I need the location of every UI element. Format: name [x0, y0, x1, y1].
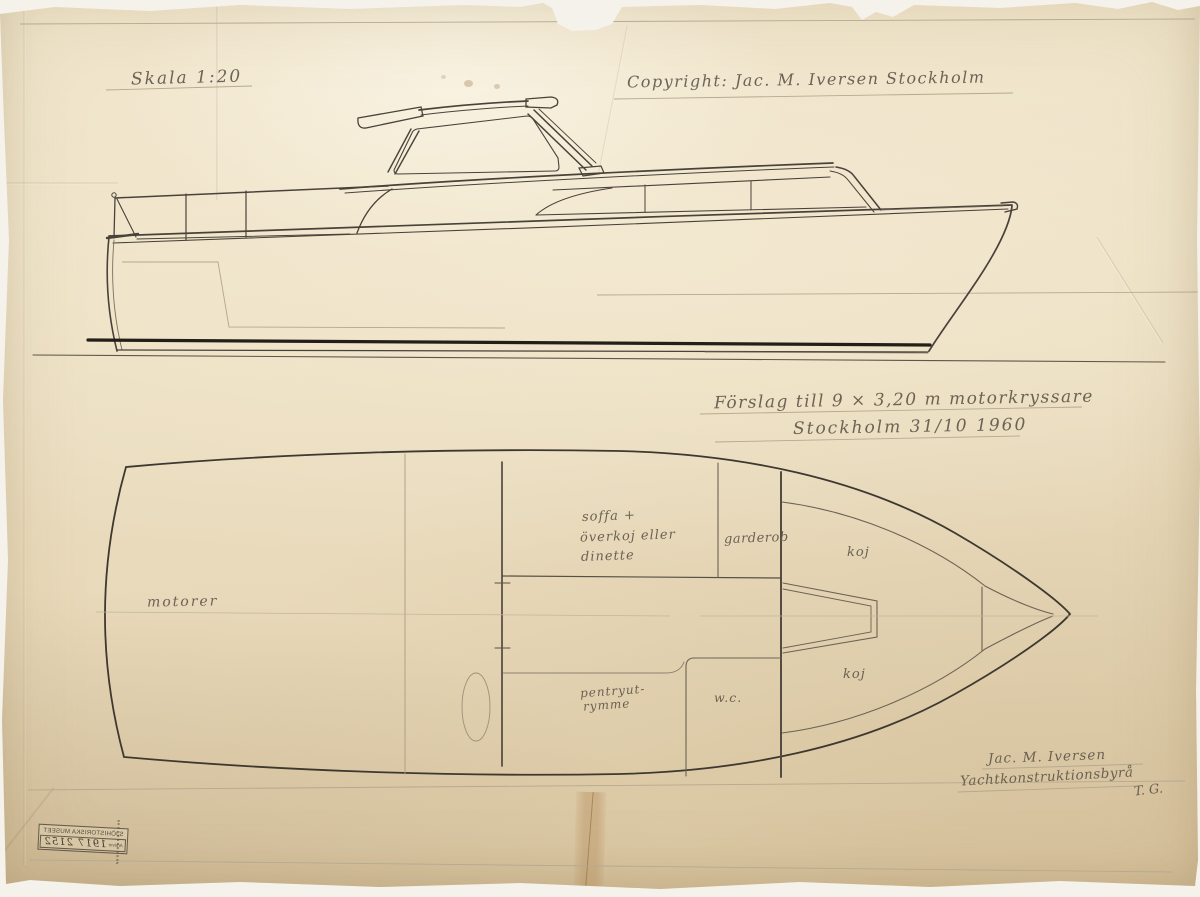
baseline	[33, 355, 1165, 362]
museum-stamp: SJÖHISTORISKA MUSEET Arkivnr 1917 2152	[37, 824, 128, 855]
cabin-window-top	[553, 177, 830, 190]
inner-hull-bottom	[782, 616, 1053, 733]
inner-hull-top	[782, 502, 1053, 614]
plan-view	[96, 450, 1098, 777]
title-underline-1	[700, 407, 1082, 414]
scanned-boat-drawing: Skala 1:20 Copyright: Jac. M. Iversen St…	[0, 0, 1200, 897]
paper-sheet: Skala 1:20 Copyright: Jac. M. Iversen St…	[0, 0, 1200, 897]
bottom-border-line	[30, 860, 1172, 872]
bridge-rail-cap	[526, 97, 558, 108]
boat-drawing	[0, 0, 1200, 897]
windscreen-glass	[528, 114, 586, 170]
museum-stamp-archive-label: Arkivnr	[108, 842, 123, 848]
title-underline-2	[715, 436, 1020, 442]
engine-compartment-outline	[122, 262, 505, 328]
waterline	[88, 340, 930, 345]
berth-footwell-outer	[783, 583, 877, 653]
sheet-guidelines	[20, 19, 1199, 872]
signature-underline	[982, 764, 1143, 769]
windscreen-glass	[534, 110, 592, 166]
sheer-line	[109, 205, 1012, 236]
stem	[929, 206, 1012, 351]
lower-border-line	[28, 781, 1185, 790]
bridge-window-opening	[394, 116, 559, 174]
bridge-top-rail	[419, 101, 528, 110]
stern-rail-post	[114, 198, 115, 238]
transom	[107, 237, 117, 351]
copyright-underline	[614, 93, 1013, 99]
side-view-construction	[122, 262, 505, 328]
transom-inner	[113, 240, 122, 350]
rail-knob	[112, 193, 116, 197]
scale-underline	[106, 86, 252, 90]
stem-head	[1001, 202, 1018, 212]
top-border-line	[20, 19, 1195, 24]
wc-partition	[686, 658, 781, 776]
crease-line	[597, 292, 1199, 295]
pantry-fixture	[462, 673, 490, 741]
hull-bottom	[117, 350, 928, 352]
sofa-front-edge	[503, 576, 781, 578]
windscreen-frame-edge	[539, 109, 596, 163]
cabin-front-pillar-inner	[830, 171, 874, 212]
cabin-front-pillar	[836, 167, 881, 210]
side-view	[33, 97, 1165, 362]
plan-hull-outline	[105, 450, 1070, 775]
pantry-counter	[503, 662, 684, 673]
stern-rail-brace	[117, 199, 136, 237]
museum-stamp-archive-number: 1917 2152	[43, 836, 107, 850]
centerline-aft	[96, 612, 670, 616]
firm-underline	[958, 786, 1135, 792]
cabin-window-front-arc	[536, 188, 612, 215]
bridge-visor	[358, 107, 423, 128]
